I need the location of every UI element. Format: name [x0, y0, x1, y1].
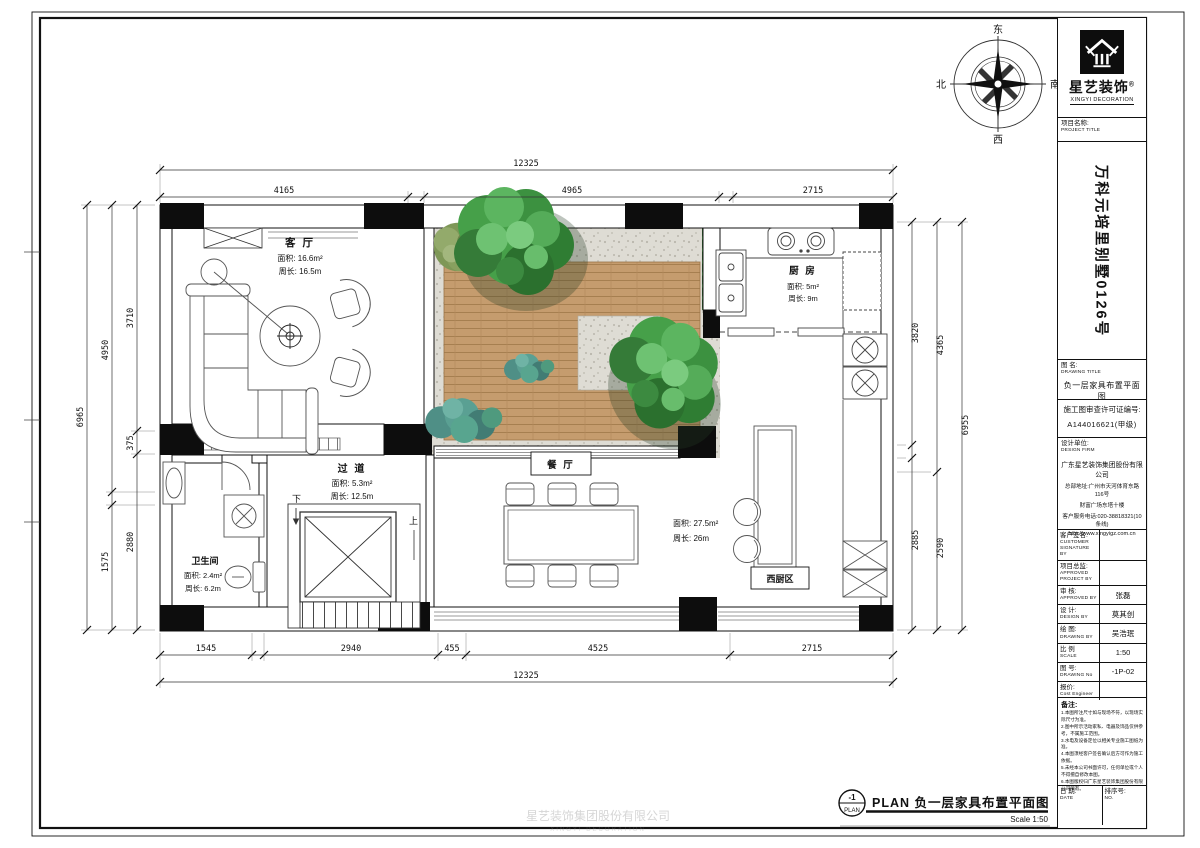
dim-left-in-1: 3710: [126, 308, 136, 328]
room-dining-perimeter: 周长: 26m: [673, 533, 709, 543]
row-approved-by: 审 核:APPROVED BY 张磊: [1058, 586, 1146, 605]
firm-label-cn: 设计单位:: [1061, 440, 1143, 448]
firm-phone: 客户服务电话:020-38818321(10条线): [1061, 512, 1143, 528]
permit-label: 施工图审查许可证编号:: [1061, 404, 1143, 415]
brand-name-cn: 星艺装饰®: [1069, 77, 1135, 97]
drawing-label-en: DRAWING TITLE: [1061, 370, 1143, 376]
drawing-sheet: 东 南 西 北: [0, 0, 1200, 848]
project-title: 万科元培里别墅0126号: [1092, 164, 1113, 336]
dim-left-overall: 6965: [76, 407, 86, 427]
room-living-area: 面积: 16.6m²: [277, 253, 323, 263]
room-bath-area: 面积: 2.4m²: [184, 570, 223, 580]
drawing-label-cn: 图 名:: [1061, 362, 1143, 370]
room-label-living: 客 厅: [284, 236, 315, 249]
project-label-cn: 项目名称:: [1061, 120, 1143, 128]
watermark: 星艺装饰集团股份有限公司 XINGYI DECORATION: [526, 808, 670, 833]
room-kitchen-area: 面积: 5m²: [787, 281, 820, 291]
note-4: 4.本图须经客户签名确认后方可作为施工依据。: [1061, 751, 1143, 765]
svg-text:XINGYI DECORATION: XINGYI DECORATION: [550, 827, 646, 833]
stairs: [288, 504, 420, 628]
floor-plan: 客 厅 面积: 16.6m² 周长: 16.5m 厨 房 面积: 5m² 周长:…: [76, 159, 1050, 833]
room-label-corridor: 过 道: [338, 462, 367, 475]
compass-west: 西: [993, 135, 1003, 146]
plan-title-footer: -1 PLAN PLAN 负一层家具布置平面图 Scale 1:50: [839, 790, 1050, 826]
notes-section: 备注: 1.本图所注尺寸如与现场不符，以现场实际尺寸为准。 2.图中所示活动家私…: [1058, 698, 1146, 786]
brand-name-en: XINGYI DECORATION: [1070, 97, 1133, 105]
row-scale: 比 例SCALE 1:50: [1058, 644, 1146, 663]
dim-right-in-1: 3820: [911, 323, 921, 343]
permit-number: A144016621(甲级): [1061, 419, 1143, 430]
note-1: 1.本图所注尺寸如与现场不符，以现场实际尺寸为准。: [1061, 710, 1143, 724]
stairs-up-label: 上: [409, 516, 418, 526]
dim-left-in-3: 2880: [126, 532, 136, 552]
dim-top-3: 2715: [803, 186, 823, 196]
permit-section: 施工图审查许可证编号: A144016621(甲级): [1058, 400, 1146, 438]
compass-east: 东: [993, 23, 1003, 36]
room-label-bath: 卫生间: [191, 555, 218, 566]
serial-no-cell: 排序号: NO.: [1103, 786, 1147, 825]
room-kitchen-perimeter: 周长: 9m: [788, 293, 818, 303]
note-2: 2.图中所示活动家私、电器及饰品仅供参考，不属施工范围。: [1061, 724, 1143, 738]
plan-title: PLAN 负一层家具布置平面图: [872, 795, 1050, 810]
drawing-title-section: 图 名: DRAWING TITLE 负一层家具布置平面图: [1058, 360, 1146, 400]
dim-bot-2: 2940: [341, 644, 361, 654]
room-dining-area: 面积: 27.5m²: [673, 518, 719, 528]
dim-bot-3: 455: [444, 644, 459, 654]
dim-top-2: 4965: [562, 186, 582, 196]
logo-icon: [1080, 30, 1124, 74]
room-corridor-area: 面积: 5.3m²: [332, 478, 373, 488]
design-firm-section: 设计单位: DESIGN FIRM 广东星艺装饰集团股份有限公司 总部地址:广州…: [1058, 438, 1146, 530]
firm-address-1: 总部地址:广州市天河体育东路116号: [1061, 482, 1143, 498]
notes-label: 备注:: [1061, 700, 1143, 710]
dim-bot-1: 1545: [196, 644, 216, 654]
room-label-dining: 餐 厅: [546, 459, 575, 471]
dim-left-mid-2: 1575: [101, 552, 111, 572]
dim-bot-overall: 12325: [513, 671, 539, 681]
note-5: 5.未经本公司书面许可，任何单位或个人不得擅自修改本图。: [1061, 765, 1143, 779]
dim-right-mid-1: 4365: [936, 335, 946, 355]
firm-address-2: 财富广场东塔十楼: [1061, 501, 1143, 509]
room-bath-perimeter: 周长: 6.2m: [185, 583, 221, 593]
row-customer-signature: 客户签名:CUSTOMER SIGNATURE BY: [1058, 530, 1146, 561]
note-3: 3.水电及设备定位以相关专业施工图纸为准。: [1061, 738, 1143, 752]
house-logo-icon: [1083, 33, 1121, 71]
stairs-down-label: 下: [292, 494, 301, 504]
registered-mark: ®: [1129, 81, 1135, 88]
dining-furniture: [504, 483, 638, 587]
firm-label-en: DESIGN FIRM: [1061, 448, 1143, 454]
room-living-perimeter: 周长: 16.5m: [279, 266, 322, 276]
date-cell: 日 期: DATE: [1058, 786, 1103, 825]
row-drawing-no: 图 号:DRAWING No -1P-02: [1058, 663, 1146, 682]
row-project-director: 项目总监:APPROVED PROJECT BY: [1058, 561, 1146, 586]
floor-plan-canvas: 东 南 西 北: [0, 0, 1200, 848]
dim-right-in-2: 2885: [911, 530, 921, 550]
dim-left-mid-1: 4950: [101, 340, 111, 360]
dim-left-in-2: 375: [126, 435, 136, 450]
project-label-section: 项目名称: PROJECT TITLE: [1058, 118, 1146, 142]
plan-ref-number: -1: [848, 793, 856, 802]
dim-top-1: 4165: [274, 186, 294, 196]
plan-ref-label: PLAN: [844, 808, 860, 814]
dim-top-overall: 12325: [513, 159, 539, 169]
project-label-en: PROJECT TITLE: [1061, 128, 1143, 134]
compass-rose: 东 南 西 北: [936, 23, 1060, 146]
title-block: 星艺装饰® XINGYI DECORATION 项目名称: PROJECT TI…: [1057, 18, 1146, 828]
dim-right-overall: 6955: [961, 415, 971, 435]
row-drawing-by: 绘 图:DRAWING BY 吴浩珉: [1058, 624, 1146, 643]
drawing-title: 负一层家具布置平面图: [1061, 380, 1143, 402]
room-corridor-perimeter: 周长: 12.5m: [331, 491, 374, 501]
company-logo-section: 星艺装饰® XINGYI DECORATION: [1058, 18, 1146, 118]
svg-text:星艺装饰集团股份有限公司: 星艺装饰集团股份有限公司: [526, 808, 670, 823]
room-label-west-kitchen: 西厨区: [766, 574, 793, 584]
dim-right-mid-2: 2590: [936, 538, 946, 558]
signature-rows: 客户签名:CUSTOMER SIGNATURE BY 项目总监:APPROVED…: [1058, 530, 1146, 698]
room-label-kitchen: 厨 房: [789, 265, 817, 277]
project-title-section: 万科元培里别墅0126号: [1058, 142, 1146, 360]
compass-north: 北: [936, 79, 946, 91]
row-design-by: 设 计:DESIGN BY 莫其创: [1058, 605, 1146, 624]
firm-name: 广东星艺装饰集团股份有限公司: [1061, 459, 1143, 479]
plan-scale: Scale 1:50: [1010, 815, 1048, 824]
dim-bot-5: 2715: [802, 644, 822, 654]
date-number-section: 日 期: DATE 排序号: NO.: [1058, 786, 1146, 825]
dim-bot-4: 4525: [588, 644, 608, 654]
kitchen-fixtures: [716, 228, 887, 399]
